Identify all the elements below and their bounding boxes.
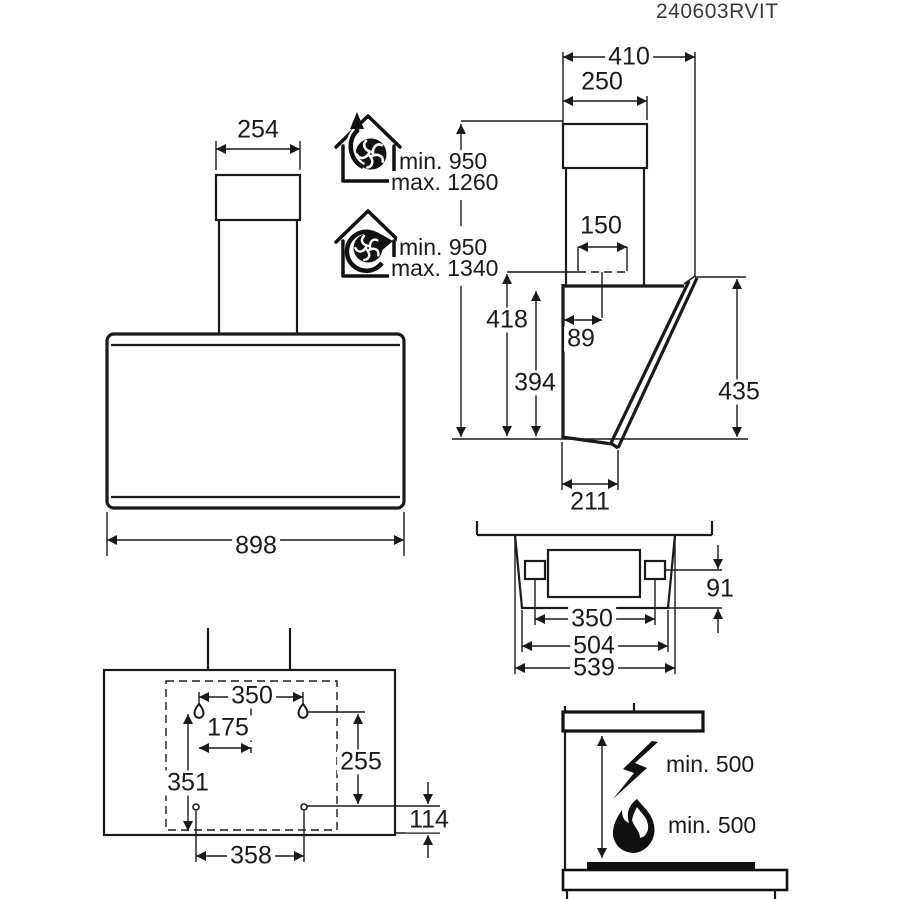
side-glass-outer [618,278,697,448]
dim-label-150: 150 [577,214,625,239]
dim-label-358: 358 [227,844,275,869]
counter [563,870,787,890]
dim-label-350-top: 350 [568,607,616,632]
hood-bottom [563,712,703,731]
flame-icon [613,799,655,853]
dim-label-175: 175 [204,716,252,741]
dim-label-394: 394 [511,371,559,396]
lower-left-hole [193,804,199,810]
mounting-template [104,628,440,862]
dim-label-211: 211 [567,490,613,515]
dim-label-255: 255 [337,750,385,775]
front-body [107,334,404,508]
electric-hob-clearance: min. 500 [664,753,756,776]
dim-label-89: 89 [564,327,598,352]
right-bracket [645,561,665,579]
recirculation-max-height: max. 1340 [389,257,500,280]
lower-right-hole [301,804,307,810]
gas-hob-clearance: min. 500 [666,814,758,837]
dim-label-539: 539 [570,656,618,681]
dim-label-250: 250 [578,70,626,95]
dim-label-410: 410 [605,45,653,70]
left-keyhole [195,704,204,718]
right-keyhole [299,704,308,718]
dim-label-114: 114 [406,808,452,833]
line-art [0,0,899,899]
duct-opening [548,550,640,597]
dim-label-351: 351 [164,771,212,796]
left-bracket [525,561,545,579]
front-view [107,141,404,556]
dim-label-91: 91 [703,577,737,602]
dim-label-350-template: 350 [228,684,276,709]
hanging-rails [208,628,290,670]
dim-label-435: 435 [715,380,763,405]
front-chimney-lower [219,220,297,334]
dim-label-898: 898 [232,534,280,559]
front-chimney-upper [216,175,300,220]
lightning-icon [613,741,658,799]
dim-label-254: 254 [234,118,282,143]
side-glass-inner [611,281,689,443]
document-code: 240603RVIT [656,1,779,22]
exhaust-max-height: max. 1260 [389,171,500,194]
dim-label-418: 418 [483,308,531,333]
installation-drawing: 240603RVIT 254 898 min. 950 max. 1260 mi… [0,0,899,899]
side-chimney-upper [563,124,647,168]
clearance-diagram [563,703,787,899]
wall-line [477,521,712,535]
